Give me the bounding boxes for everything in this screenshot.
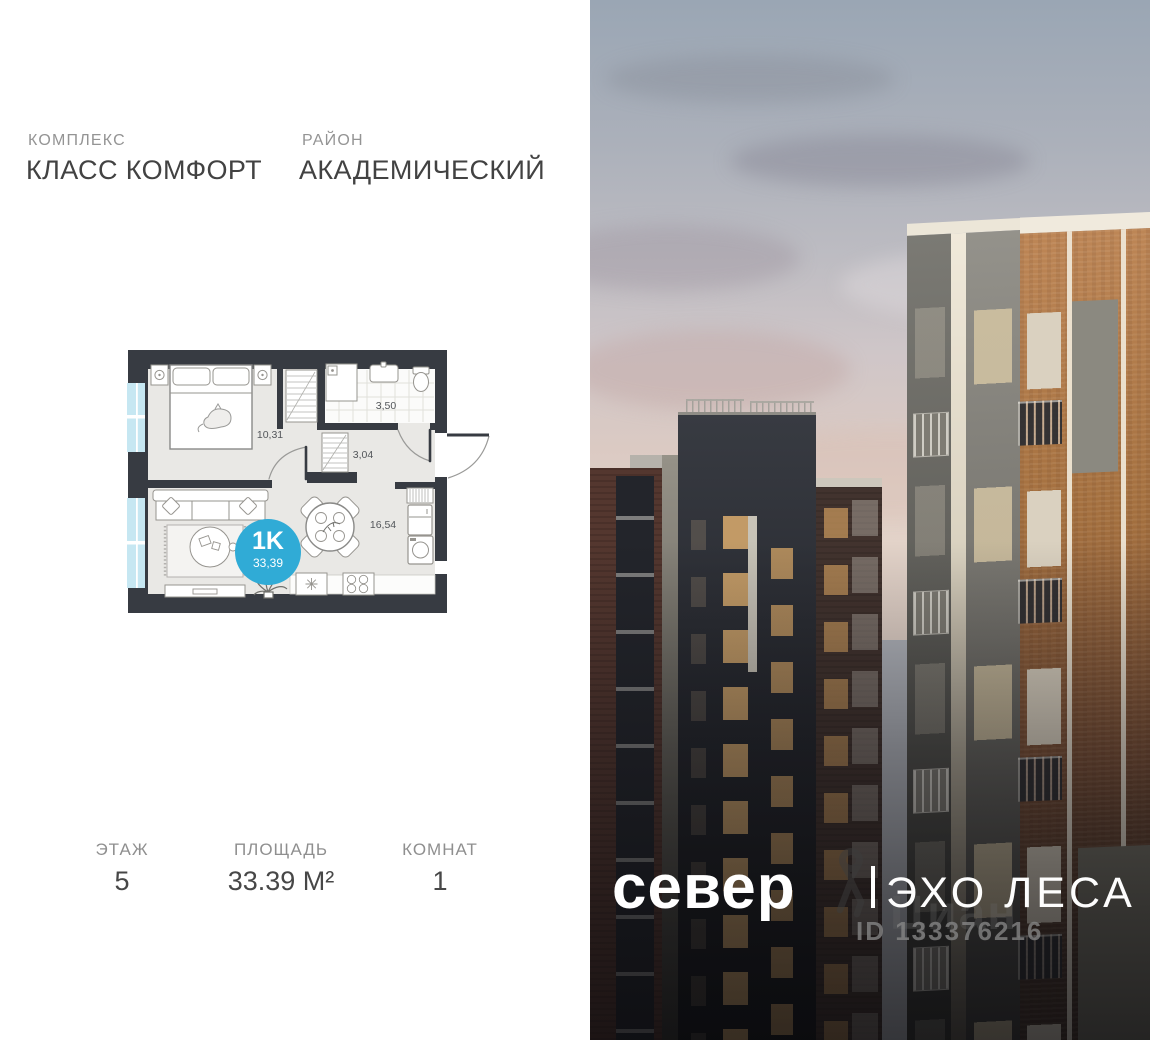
- listing-card: КОМПЛЕКС КЛАСС КОМФОРТ РАЙОН АКАДЕМИЧЕСК…: [0, 0, 1150, 1040]
- building-left-windows: [616, 476, 654, 1040]
- building-parapet: [816, 478, 882, 487]
- project-logo-left: север: [612, 852, 796, 923]
- nightstand-left: [151, 365, 168, 385]
- balcony: [913, 768, 949, 814]
- cloud: [605, 55, 895, 103]
- stat-floor-value: 5: [42, 866, 202, 897]
- listing-id-watermark: ID 133376216: [856, 916, 1043, 947]
- balcony: [1018, 756, 1062, 802]
- shower: [326, 364, 357, 401]
- cloud: [730, 135, 1030, 187]
- room-area-label: 16,54: [370, 519, 396, 531]
- building-mid-balconies: [852, 500, 878, 1040]
- kitchen-cabinet: [407, 488, 433, 503]
- project-photo: Циан север ЭХО ЛЕСА ID 133376216: [590, 0, 1150, 1040]
- balcony: [1018, 400, 1062, 446]
- toilet: [413, 367, 429, 392]
- building-mid-windows: [824, 508, 848, 1040]
- rug: [165, 525, 245, 577]
- nightstand-right: [254, 365, 271, 385]
- badge-area: 33,39: [253, 556, 283, 570]
- badge-type: 1K: [252, 527, 284, 555]
- district-name: АКАДЕМИЧЕСКИЙ: [299, 155, 545, 186]
- tower-light-stripe: [748, 516, 757, 672]
- balcony: [913, 412, 949, 458]
- wall-niche: [435, 561, 447, 574]
- balcony: [1018, 578, 1062, 624]
- stat-area-value: 33.39 М²: [201, 866, 361, 897]
- closet-bedroom: [286, 370, 317, 422]
- washing-machine: [408, 536, 433, 564]
- kitchen-counter: [290, 573, 435, 595]
- entrance-door: [447, 435, 489, 478]
- fridge: [408, 505, 432, 535]
- building-pier: [662, 455, 678, 1040]
- logo-divider: [871, 866, 875, 908]
- sofa: [153, 490, 268, 520]
- tower-windows: [691, 520, 706, 1040]
- facade-panel: [1072, 299, 1118, 473]
- room-area-label: 3,50: [376, 400, 397, 412]
- project-logo-right: ЭХО ЛЕСА: [886, 869, 1136, 918]
- complex-name: КЛАСС КОМФОРТ: [26, 155, 262, 186]
- stat-area-label: ПЛОЩАДЬ: [201, 840, 361, 860]
- balcony: [913, 946, 949, 992]
- floor-plan: 10,31 3,50 3,04 16,54 1K 33,39: [115, 340, 495, 625]
- balcony: [913, 590, 949, 636]
- stat-floor-label: ЭТАЖ: [42, 840, 202, 860]
- apartment-badge: 1K 33,39: [235, 519, 301, 585]
- tower-windows: [723, 516, 748, 1040]
- stat-floor: ЭТАЖ 5: [42, 840, 202, 897]
- tv-stand: [165, 585, 245, 597]
- complex-label: КОМПЛЕКС: [28, 132, 126, 150]
- bed: [170, 365, 252, 449]
- floor-plan-drawing: 10,31 3,50 3,04 16,54 1K 33,39: [115, 340, 495, 625]
- stat-rooms-value: 1: [360, 866, 520, 897]
- sink: [370, 362, 398, 382]
- stat-rooms-label: КОМНАТ: [360, 840, 520, 860]
- room-area-label: 3,04: [353, 449, 374, 461]
- entrance-opening: [435, 433, 447, 477]
- tower-windows: [771, 548, 793, 1040]
- stat-rooms: КОМНАТ 1: [360, 840, 520, 897]
- district-label: РАЙОН: [302, 132, 364, 150]
- stat-area: ПЛОЩАДЬ 33.39 М²: [201, 840, 361, 897]
- room-area-label: 10,31: [257, 429, 283, 441]
- closet-hallway: [322, 433, 348, 472]
- dining-table: [299, 495, 361, 559]
